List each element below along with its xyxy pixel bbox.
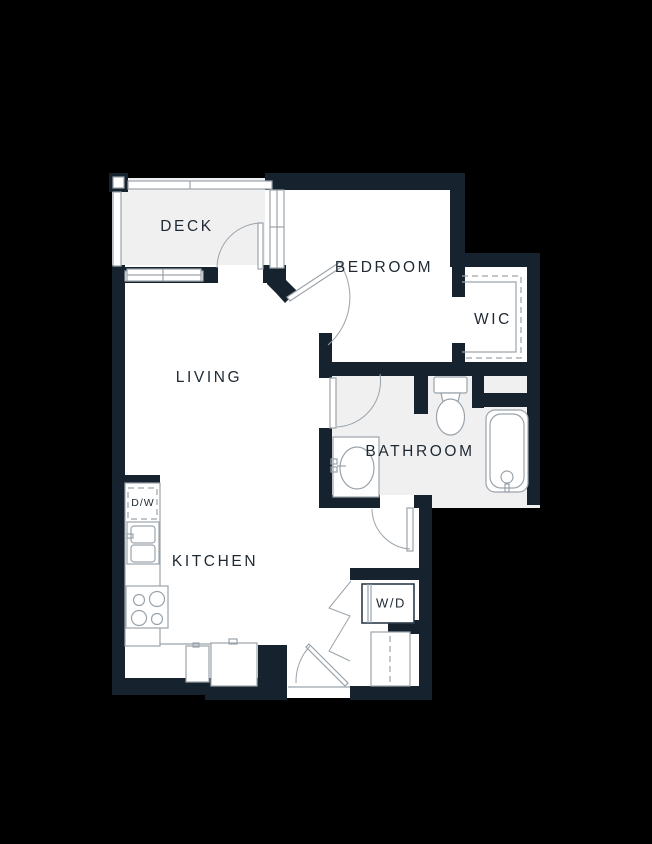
living-window (127, 269, 201, 281)
deck-label: DECK (160, 218, 213, 236)
floor-plan: DECK BEDROOM WIC LIVING BATHROOM KITCHEN… (0, 0, 652, 844)
bathroom-door-leaf (330, 378, 336, 428)
toilet-nook-stub-left (414, 376, 428, 414)
washer-dryer-label: W/D (376, 596, 406, 611)
wd-closet-north-wall (350, 568, 419, 580)
deck-railing-north (128, 181, 272, 189)
deck-railing-west (113, 192, 121, 266)
bedroom-south-wall (330, 362, 540, 376)
hall-door-leaf (407, 508, 413, 551)
deck-door-leaf (258, 223, 263, 269)
dishwasher-label: D/W (131, 497, 154, 509)
wic-label: WIC (474, 311, 512, 329)
south-exterior-wall-right (350, 686, 432, 700)
bathtub (486, 410, 528, 492)
floor-plan-drawing (0, 0, 652, 844)
southeast-exterior-wall (419, 508, 432, 700)
living-label: LIVING (176, 369, 242, 387)
bedroom-north-wall (265, 173, 465, 190)
bathroom-west-wall (319, 428, 332, 508)
stove (126, 586, 168, 628)
bathroom-south-wall-block (414, 495, 432, 508)
refrigerator (211, 639, 257, 686)
bedroom-east-wall (450, 173, 465, 267)
wic-west-wall-lower (452, 343, 465, 376)
bedroom-label: BEDROOM (335, 259, 433, 277)
toilet (434, 377, 467, 435)
east-exterior-wall (527, 253, 540, 505)
west-exterior-wall (112, 265, 125, 678)
bedroom-window (270, 190, 284, 268)
bathroom-label: BATHROOM (365, 443, 474, 461)
kitchen-label: KITCHEN (172, 553, 258, 571)
entry-closet (371, 632, 410, 686)
tub-head-wall (480, 393, 527, 407)
wic-north-wall (450, 253, 540, 267)
deck-post-cap (113, 177, 124, 188)
small-appliance (186, 643, 209, 682)
kitchen-sink (127, 522, 159, 564)
